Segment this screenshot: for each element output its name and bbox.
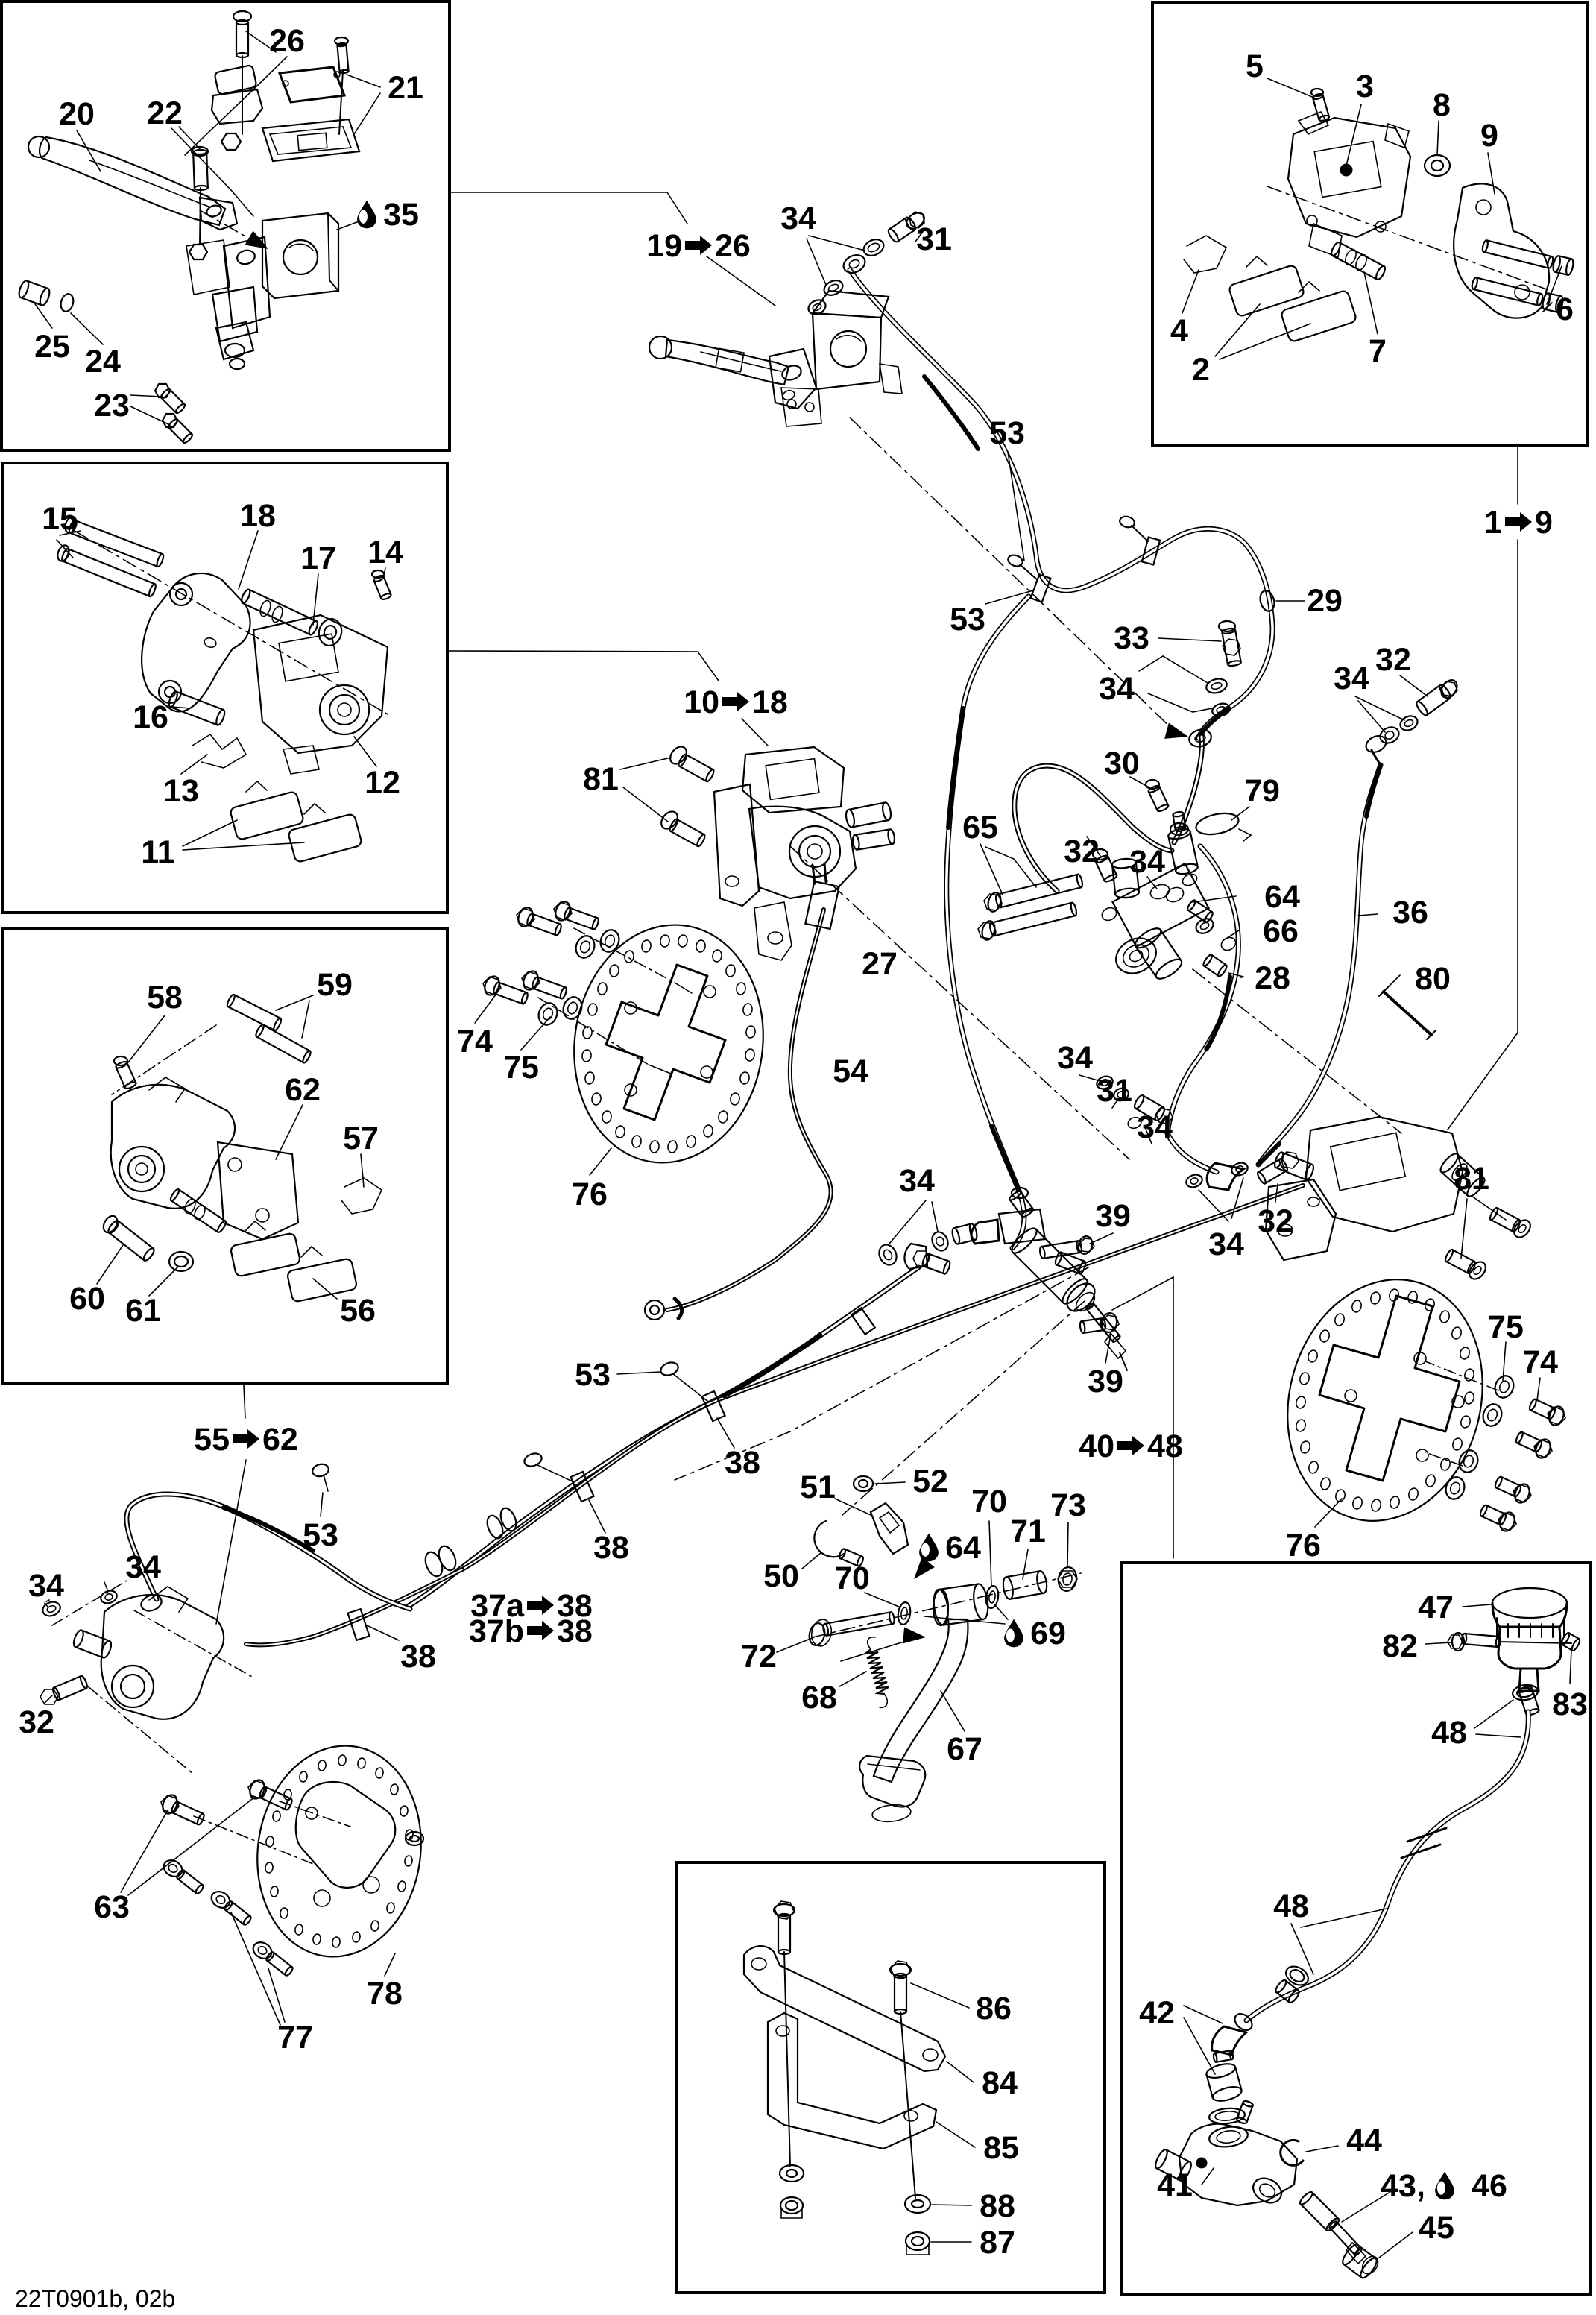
svg-text:60: 60 [69, 1281, 105, 1317]
svg-text:53: 53 [950, 602, 985, 637]
svg-text:3: 3 [1356, 69, 1374, 104]
svg-text:52: 52 [912, 1464, 948, 1499]
svg-text:34: 34 [125, 1549, 161, 1585]
svg-text:32: 32 [19, 1704, 54, 1740]
svg-text:17: 17 [300, 541, 336, 576]
svg-text:46: 46 [1472, 2168, 1507, 2204]
svg-text:15: 15 [42, 501, 78, 537]
svg-text:30: 30 [1104, 746, 1140, 781]
svg-text:54: 54 [833, 1053, 868, 1089]
svg-text:28: 28 [1255, 960, 1290, 996]
svg-text:45: 45 [1419, 2210, 1454, 2246]
svg-text:51: 51 [800, 1470, 836, 1505]
svg-text:86: 86 [976, 1991, 1012, 2026]
svg-text:2: 2 [1192, 352, 1210, 388]
svg-text:75: 75 [503, 1050, 539, 1086]
svg-text:38: 38 [593, 1530, 629, 1566]
svg-text:50: 50 [763, 1558, 799, 1594]
svg-text:37b: 37b [469, 1613, 524, 1649]
svg-text:34: 34 [1129, 844, 1165, 880]
svg-text:73: 73 [1050, 1487, 1086, 1523]
svg-text:34: 34 [1057, 1040, 1093, 1076]
svg-text:82: 82 [1382, 1628, 1418, 1664]
svg-text:12: 12 [365, 765, 400, 801]
svg-text:43,: 43, [1381, 2168, 1425, 2204]
svg-text:70: 70 [971, 1484, 1007, 1519]
svg-text:39: 39 [1088, 1364, 1123, 1399]
svg-text:75: 75 [1488, 1309, 1524, 1345]
svg-text:24: 24 [85, 344, 121, 379]
svg-text:56: 56 [340, 1293, 376, 1329]
svg-text:78: 78 [367, 1976, 403, 2012]
svg-text:84: 84 [982, 2065, 1018, 2101]
svg-text:9: 9 [1535, 505, 1553, 541]
svg-text:38: 38 [400, 1639, 436, 1675]
svg-text:81: 81 [583, 761, 619, 797]
svg-text:34: 34 [28, 1568, 64, 1604]
svg-text:64: 64 [1264, 879, 1300, 915]
svg-text:70: 70 [834, 1560, 870, 1596]
svg-text:16: 16 [133, 699, 168, 735]
svg-text:47: 47 [1418, 1590, 1454, 1625]
svg-text:74: 74 [1522, 1344, 1558, 1380]
svg-text:79: 79 [1244, 773, 1280, 809]
svg-text:21: 21 [388, 70, 423, 106]
svg-text:1: 1 [1484, 505, 1502, 541]
svg-text:22: 22 [147, 95, 183, 131]
svg-text:42: 42 [1139, 1995, 1175, 2031]
svg-text:85: 85 [983, 2130, 1019, 2166]
svg-text:53: 53 [989, 415, 1025, 451]
svg-text:67: 67 [947, 1731, 982, 1767]
svg-text:36: 36 [1392, 895, 1428, 930]
svg-text:6: 6 [1556, 292, 1574, 327]
svg-text:77: 77 [277, 2020, 313, 2056]
svg-text:31: 31 [1097, 1073, 1132, 1109]
svg-text:69: 69 [1030, 1616, 1066, 1651]
svg-text:34: 34 [1137, 1109, 1173, 1145]
svg-text:80: 80 [1415, 961, 1451, 997]
svg-text:27: 27 [862, 946, 898, 982]
svg-text:18: 18 [240, 498, 276, 534]
svg-text:48: 48 [1273, 1889, 1309, 1924]
svg-text:74: 74 [457, 1024, 493, 1059]
svg-text:76: 76 [1285, 1528, 1321, 1563]
svg-text:23: 23 [94, 388, 130, 423]
svg-text:88: 88 [980, 2188, 1015, 2224]
svg-text:34: 34 [780, 201, 816, 236]
svg-text:22T0901b, 02b: 22T0901b, 02b [15, 2285, 175, 2312]
svg-text:34: 34 [1334, 661, 1369, 696]
svg-text:72: 72 [741, 1639, 777, 1675]
svg-text:68: 68 [801, 1680, 837, 1716]
svg-text:4: 4 [1170, 313, 1188, 349]
svg-text:59: 59 [317, 967, 353, 1003]
svg-text:48: 48 [1431, 1715, 1467, 1751]
svg-text:5: 5 [1246, 48, 1264, 84]
svg-text:8: 8 [1433, 87, 1451, 123]
svg-text:83: 83 [1552, 1686, 1588, 1722]
svg-text:63: 63 [94, 1889, 130, 1925]
svg-text:10: 10 [684, 684, 719, 720]
svg-text:19: 19 [646, 228, 682, 264]
svg-text:87: 87 [980, 2225, 1015, 2261]
svg-text:32: 32 [1064, 834, 1100, 869]
svg-text:81: 81 [1454, 1161, 1489, 1197]
svg-text:11: 11 [141, 834, 174, 870]
svg-text:20: 20 [59, 96, 95, 132]
svg-text:62: 62 [285, 1072, 321, 1108]
svg-text:71: 71 [1010, 1514, 1046, 1549]
svg-text:26: 26 [715, 228, 751, 264]
svg-text:58: 58 [147, 980, 183, 1015]
svg-text:64: 64 [945, 1530, 981, 1566]
svg-text:61: 61 [125, 1293, 161, 1329]
svg-text:32: 32 [1375, 642, 1411, 678]
svg-text:26: 26 [269, 23, 305, 59]
svg-text:65: 65 [962, 810, 998, 845]
svg-text:62: 62 [262, 1422, 298, 1458]
svg-text:44: 44 [1346, 2123, 1382, 2158]
svg-text:13: 13 [163, 773, 199, 809]
svg-text:34: 34 [1208, 1226, 1244, 1262]
svg-text:39: 39 [1095, 1198, 1131, 1234]
svg-text:31: 31 [916, 221, 952, 257]
svg-text:29: 29 [1307, 583, 1343, 619]
svg-text:57: 57 [343, 1121, 379, 1156]
svg-text:48: 48 [1147, 1429, 1183, 1464]
svg-text:34: 34 [899, 1163, 935, 1199]
svg-text:40: 40 [1079, 1429, 1114, 1464]
svg-text:53: 53 [575, 1357, 611, 1393]
svg-text:55: 55 [194, 1422, 230, 1458]
svg-text:32: 32 [1258, 1203, 1293, 1239]
svg-text:25: 25 [34, 329, 70, 365]
svg-text:14: 14 [368, 535, 403, 570]
svg-text:38: 38 [725, 1445, 760, 1481]
svg-text:7: 7 [1369, 333, 1387, 369]
svg-text:35: 35 [383, 197, 419, 233]
svg-text:9: 9 [1480, 118, 1498, 154]
svg-text:18: 18 [752, 684, 788, 720]
svg-text:41: 41 [1157, 2167, 1193, 2203]
svg-text:38: 38 [557, 1613, 593, 1649]
svg-text:53: 53 [303, 1517, 338, 1553]
svg-text:76: 76 [572, 1177, 608, 1212]
svg-text:33: 33 [1114, 620, 1149, 656]
svg-text:66: 66 [1263, 913, 1299, 949]
svg-text:34: 34 [1099, 671, 1135, 707]
